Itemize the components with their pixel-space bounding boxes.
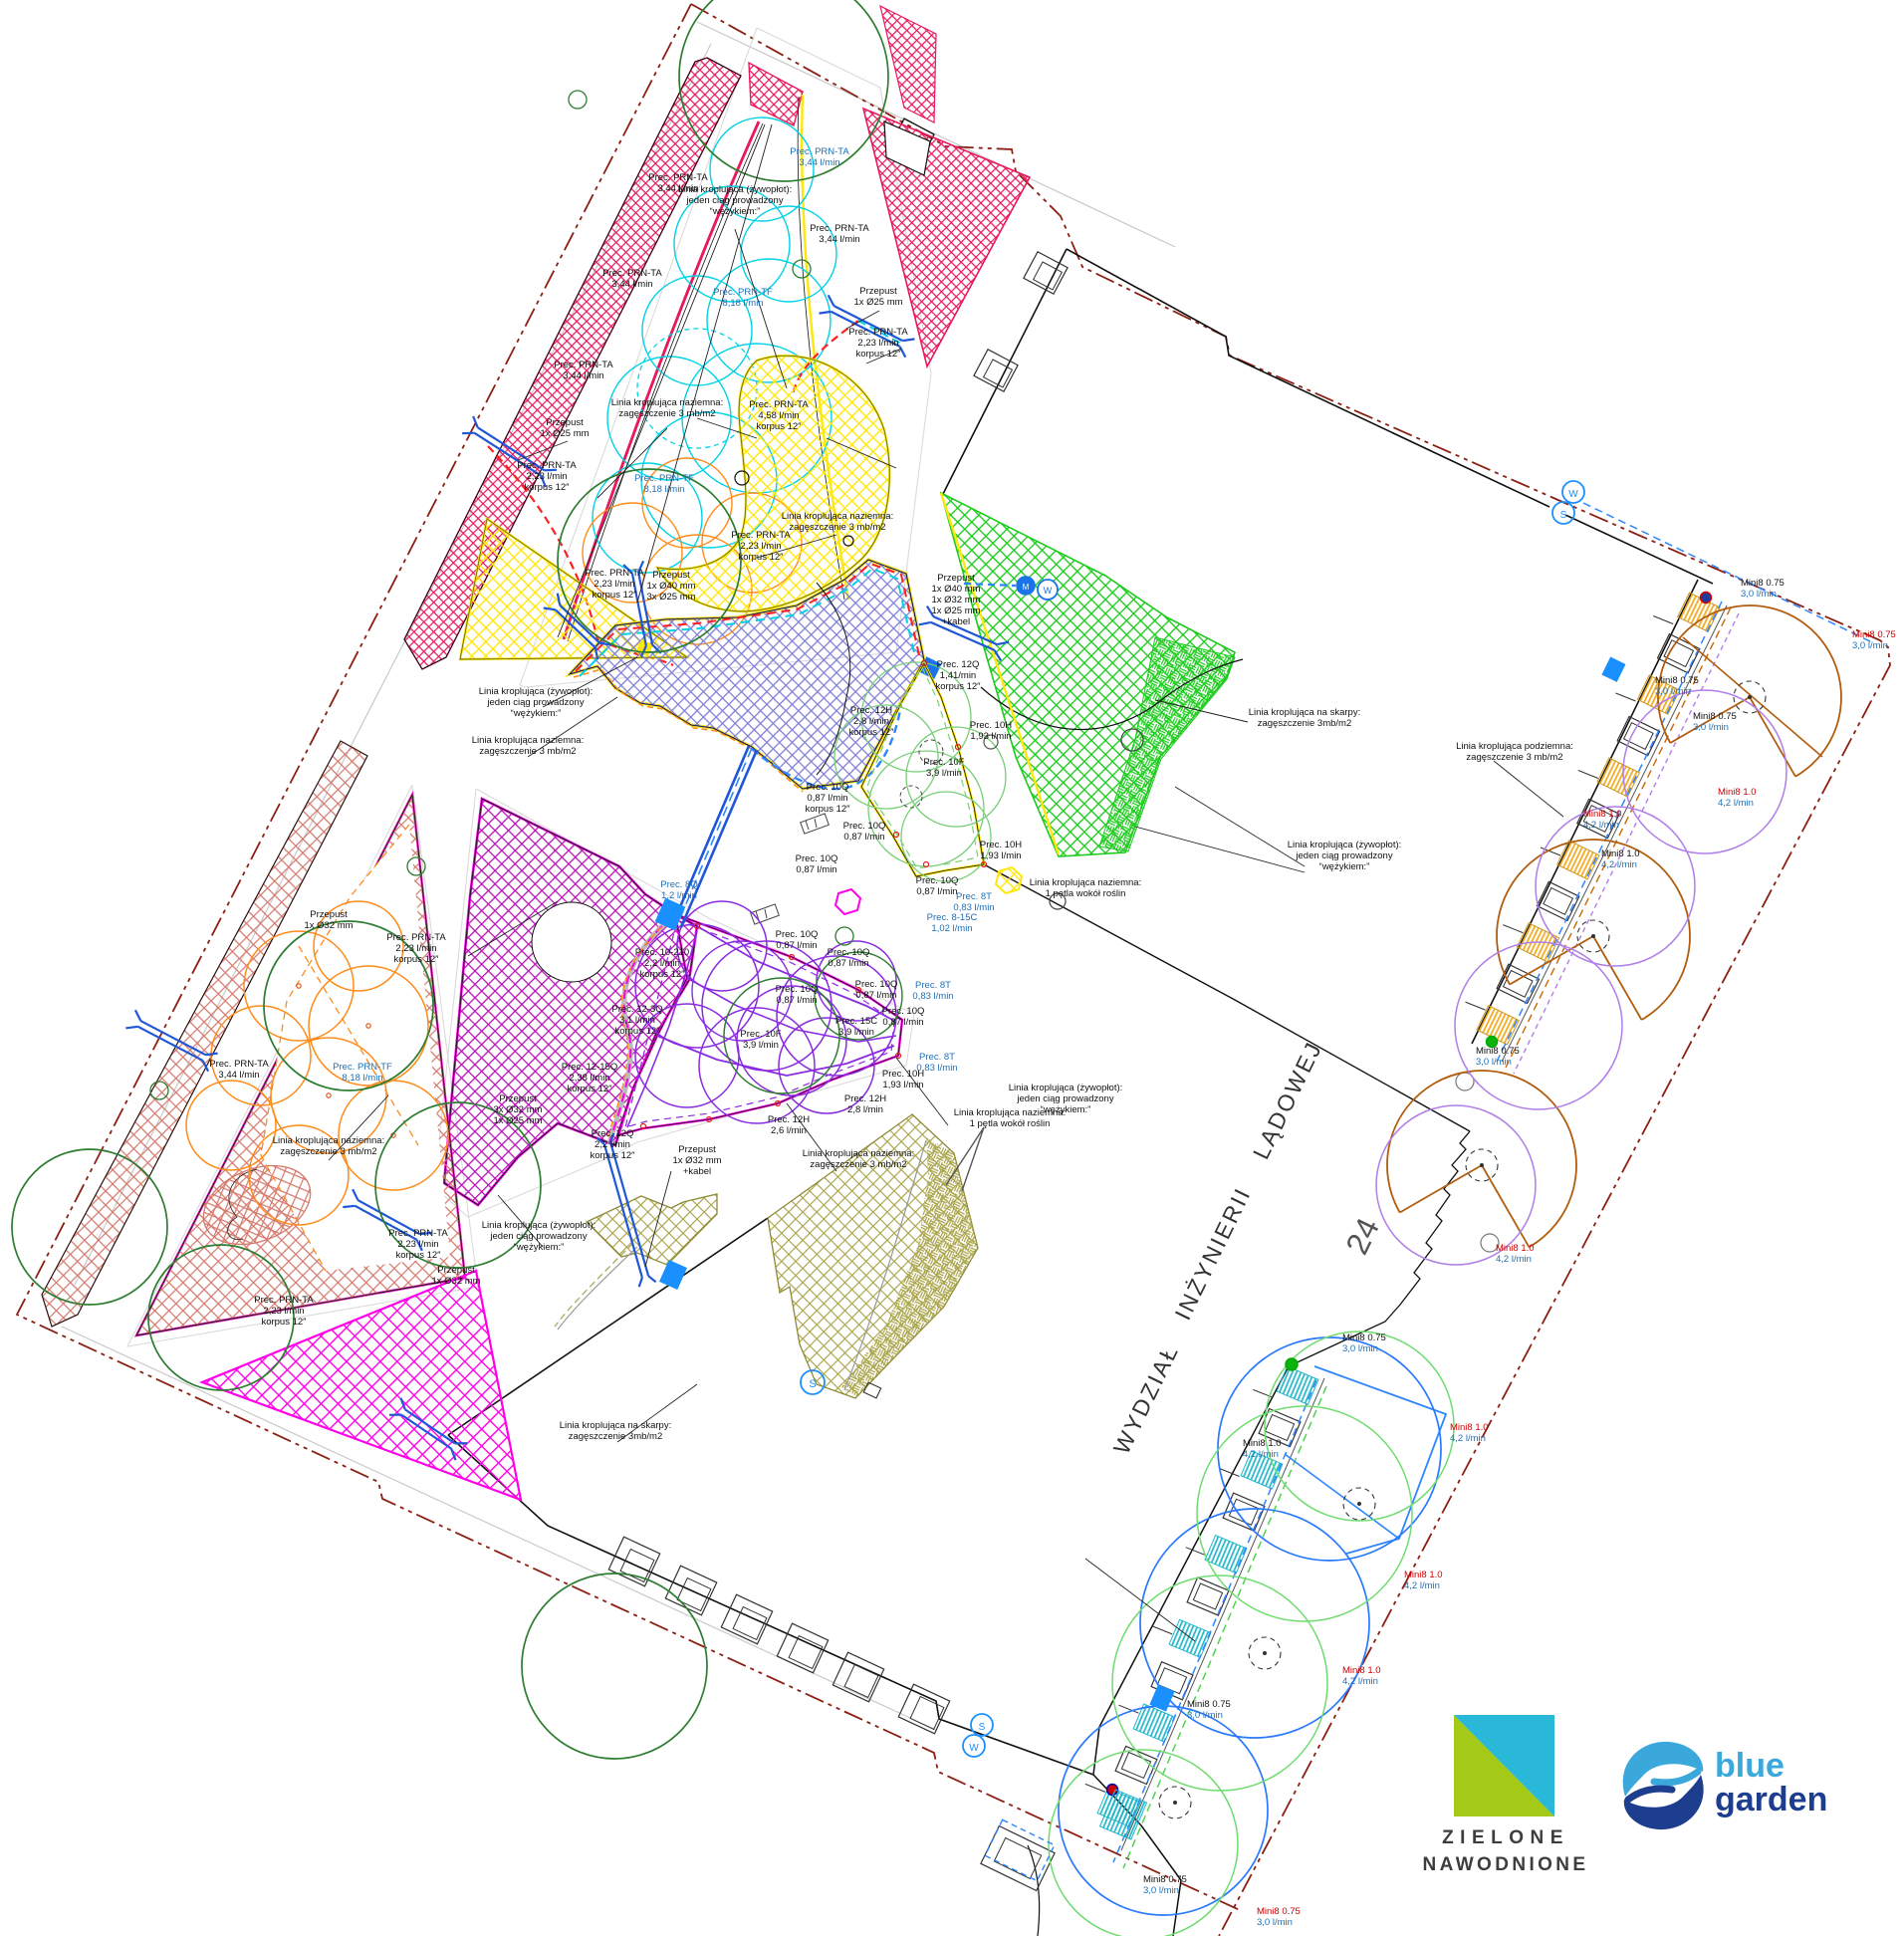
svg-text:Prec. 10Q: Prec. 10Q: [843, 821, 886, 832]
svg-text:NAWODNIONE: NAWODNIONE: [1423, 1854, 1589, 1875]
svg-text:4,2 l/min: 4,2 l/min: [1496, 1254, 1532, 1265]
svg-text:Prec. 12Q: Prec. 12Q: [592, 1128, 634, 1139]
svg-text:zagęszczenie 3 mb/m2: zagęszczenie 3 mb/m2: [479, 746, 576, 757]
svg-text:2,23 l/min: 2,23 l/min: [857, 338, 898, 349]
svg-text:3,9 l/min: 3,9 l/min: [926, 768, 962, 779]
svg-text:Mini8 0.75: Mini8 0.75: [1187, 1699, 1231, 1710]
svg-text:Mini8 0.75: Mini8 0.75: [1476, 1046, 1520, 1057]
svg-text:3,0 l/min: 3,0 l/min: [1693, 722, 1729, 733]
svg-text:3,0 l/min: 3,0 l/min: [1655, 686, 1691, 697]
svg-text:Linia kroplująca (żywopłot):: Linia kroplująca (żywopłot):: [482, 1220, 596, 1231]
svg-text:Mini8 1.0: Mini8 1.0: [1583, 809, 1622, 820]
svg-text:1x Ø40 mm: 1x Ø40 mm: [646, 581, 695, 592]
svg-text:4,58 l/min: 4,58 l/min: [758, 410, 799, 421]
svg-text:“wężykiem:”: “wężykiem:”: [514, 1242, 565, 1253]
svg-text:Prec. 10Q: Prec. 10Q: [776, 984, 819, 995]
svg-text:Linia kroplująca naziemna:: Linia kroplująca naziemna:: [782, 511, 893, 522]
svg-text:Linia kroplująca na skarpy:: Linia kroplująca na skarpy:: [560, 1420, 671, 1431]
svg-text:Linia kroplująca (żywopłot):: Linia kroplująca (żywopłot):: [1009, 1083, 1123, 1093]
svg-text:0,87 l/min: 0,87 l/min: [807, 793, 847, 804]
svg-text:Linia kroplująca naziemna:: Linia kroplująca naziemna:: [611, 397, 723, 408]
svg-text:2,2 l/min: 2,2 l/min: [595, 1139, 630, 1150]
svg-text:+kabel: +kabel: [942, 616, 970, 627]
svg-text:Prec. PRN-TA: Prec. PRN-TA: [810, 223, 869, 234]
svg-text:1,02 l/min: 1,02 l/min: [931, 923, 972, 934]
svg-text:Mini8 0.75: Mini8 0.75: [1852, 629, 1896, 640]
svg-text:4,2 l/min: 4,2 l/min: [1450, 1433, 1486, 1444]
svg-text:Linia kroplująca (żywopłot):: Linia kroplująca (żywopłot):: [1288, 840, 1402, 850]
svg-text:Prec. 8T: Prec. 8T: [956, 891, 992, 902]
svg-text:Prec. PRN-TA: Prec. PRN-TA: [585, 568, 644, 579]
svg-text:Prec. 10H: Prec. 10H: [980, 840, 1022, 850]
svg-text:3,44 l/min: 3,44 l/min: [563, 370, 603, 381]
svg-text:korpus 12″: korpus 12″: [261, 1317, 307, 1328]
svg-text:Prec. PRN-TF: Prec. PRN-TF: [713, 287, 773, 298]
svg-text:1,93 l/min: 1,93 l/min: [970, 731, 1011, 742]
svg-text:Mini8 1.0: Mini8 1.0: [1496, 1243, 1535, 1254]
svg-text:M: M: [1023, 583, 1030, 592]
svg-text:Prec. PRN-TF: Prec. PRN-TF: [634, 473, 694, 484]
svg-text:4,2 l/min: 4,2 l/min: [1342, 1676, 1378, 1687]
svg-text:garden: garden: [1715, 1781, 1827, 1818]
svg-text:3x Ø25 mm: 3x Ø25 mm: [646, 592, 695, 603]
svg-text:1,41/min: 1,41/min: [940, 670, 976, 681]
svg-text:1,93 l/min: 1,93 l/min: [882, 1080, 923, 1090]
svg-text:korpus 12″: korpus 12″: [393, 954, 439, 965]
svg-text:Linia kroplująca podziemna:: Linia kroplująca podziemna:: [1456, 741, 1573, 752]
svg-text:2,38 l/min: 2,38 l/min: [569, 1073, 609, 1084]
svg-text:1x Ø25 mm: 1x Ø25 mm: [493, 1115, 542, 1126]
svg-text:0,87 l/min: 0,87 l/min: [882, 1017, 923, 1028]
svg-text:Prec. 8T: Prec. 8T: [919, 1052, 955, 1063]
svg-text:Mini8 1.0: Mini8 1.0: [1601, 848, 1640, 859]
svg-text:zagęszczenie 3mb/m2: zagęszczenie 3mb/m2: [1258, 718, 1352, 729]
svg-text:8,18 l/min: 8,18 l/min: [722, 298, 763, 309]
svg-text:Linia kroplująca naziemna:: Linia kroplująca naziemna:: [803, 1148, 914, 1159]
svg-text:0,87 l/min: 0,87 l/min: [776, 940, 817, 951]
svg-text:zagęszczenie 3 mb/m2: zagęszczenie 3 mb/m2: [280, 1146, 376, 1157]
svg-text:Mini8 0.75: Mini8 0.75: [1655, 675, 1699, 686]
svg-text:Prec. 10Q: Prec. 10Q: [882, 1006, 925, 1017]
svg-text:Przepust: Przepust: [437, 1265, 475, 1276]
svg-text:Prec. 10H: Prec. 10H: [882, 1069, 924, 1080]
svg-text:3,0 l/min: 3,0 l/min: [1187, 1710, 1223, 1721]
svg-text:Mini8 1.0: Mini8 1.0: [1243, 1438, 1282, 1449]
svg-text:jeden ciąg prowadzony: jeden ciąg prowadzony: [486, 697, 584, 708]
svg-text:korpus 12″: korpus 12″: [639, 969, 685, 980]
svg-text:1x Ø25 mm: 1x Ø25 mm: [540, 428, 589, 439]
svg-text:2,8 l/min: 2,8 l/min: [847, 1104, 883, 1115]
svg-text:4,2 l/min: 4,2 l/min: [1718, 798, 1754, 809]
svg-text:Prec. 12H: Prec. 12H: [850, 705, 892, 716]
svg-text:3,0 l/min: 3,0 l/min: [1342, 1343, 1378, 1354]
svg-text:2,2 l/min: 2,2 l/min: [644, 958, 680, 969]
svg-text:Prec. 12H: Prec. 12H: [768, 1114, 810, 1125]
svg-text:3x Ø32 mm: 3x Ø32 mm: [493, 1104, 542, 1115]
svg-text:Prec. PRN-TA: Prec. PRN-TA: [209, 1059, 269, 1070]
svg-text:2,23 l/min: 2,23 l/min: [594, 579, 634, 590]
svg-text:0,87 l/min: 0,87 l/min: [776, 995, 817, 1006]
svg-text:Mini8 0.75: Mini8 0.75: [1741, 578, 1785, 589]
svg-text:2,6 l/min: 2,6 l/min: [771, 1125, 807, 1136]
svg-text:1x Ø32 mm: 1x Ø32 mm: [672, 1155, 721, 1166]
svg-text:Linia kroplująca (żywopłot):: Linia kroplująca (żywopłot):: [678, 184, 793, 195]
svg-text:jeden ciąg prowadzony: jeden ciąg prowadzony: [489, 1231, 587, 1242]
svg-text:8,18 l/min: 8,18 l/min: [643, 484, 684, 495]
svg-text:“wężykiem:”: “wężykiem:”: [1041, 1104, 1091, 1115]
svg-text:+kabel: +kabel: [683, 1166, 711, 1177]
svg-text:Prec. PRN-TA: Prec. PRN-TA: [554, 360, 613, 370]
svg-text:0,83 l/min: 0,83 l/min: [912, 991, 953, 1002]
svg-text:Prec. 10H: Prec. 10H: [970, 720, 1012, 731]
svg-text:3,9 l/min: 3,9 l/min: [838, 1027, 874, 1038]
svg-text:3,44 l/min: 3,44 l/min: [611, 279, 652, 290]
svg-text:zagęszczenie 3 mb/m2: zagęszczenie 3 mb/m2: [789, 522, 885, 533]
svg-text:korpus 12″: korpus 12″: [567, 1084, 612, 1094]
svg-text:jeden ciąg prowadzony: jeden ciąg prowadzony: [1016, 1093, 1113, 1104]
svg-text:Linia kroplująca naziemna:: Linia kroplująca naziemna:: [472, 735, 584, 746]
svg-text:Mini8 1.0: Mini8 1.0: [1404, 1570, 1443, 1580]
svg-text:Mini8 0.75: Mini8 0.75: [1693, 711, 1737, 722]
svg-text:1x Ø25 mm: 1x Ø25 mm: [931, 605, 980, 616]
svg-text:Prec. PRN-TA: Prec. PRN-TA: [648, 172, 708, 183]
svg-text:1x Ø32 mm: 1x Ø32 mm: [304, 920, 353, 931]
svg-text:Prec. 10Q: Prec. 10Q: [828, 947, 870, 958]
svg-text:1 pętla wokół roślin: 1 pętla wokół roślin: [1046, 888, 1126, 899]
svg-text:zagęszczenie 3 mb/m2: zagęszczenie 3 mb/m2: [618, 408, 715, 419]
svg-text:jeden ciąg prowadzony: jeden ciąg prowadzony: [685, 195, 783, 206]
svg-text:1x Ø40 mm: 1x Ø40 mm: [931, 584, 980, 595]
svg-text:Przepust: Przepust: [310, 909, 348, 920]
svg-text:Przepust: Przepust: [652, 570, 690, 581]
svg-text:3,0 l/min: 3,0 l/min: [1476, 1057, 1512, 1068]
svg-text:3,9 l/min: 3,9 l/min: [743, 1040, 779, 1051]
svg-text:Mini8 0.75: Mini8 0.75: [1342, 1332, 1386, 1343]
svg-text:korpus 12″: korpus 12″: [756, 421, 802, 432]
svg-text:korpus 12″: korpus 12″: [592, 590, 637, 601]
svg-text:Prec. 12-3Q: Prec. 12-3Q: [611, 1004, 662, 1015]
svg-text:Linia kroplująca naziemna:: Linia kroplująca naziemna:: [273, 1135, 384, 1146]
svg-text:S: S: [979, 1722, 986, 1733]
svg-text:Prec. PRN-TA: Prec. PRN-TA: [749, 399, 809, 410]
svg-text:korpus 12″: korpus 12″: [395, 1250, 441, 1261]
svg-text:Prec. 10-210: Prec. 10-210: [635, 947, 689, 958]
svg-text:S: S: [809, 1378, 816, 1390]
svg-text:Prec. PRN-TA: Prec. PRN-TA: [254, 1295, 314, 1306]
svg-text:1x Ø32 mm: 1x Ø32 mm: [931, 595, 980, 605]
svg-text:Prec. 10Q: Prec. 10Q: [776, 929, 819, 940]
svg-text:korpus 12″: korpus 12″: [935, 681, 981, 692]
svg-text:0,87 l/min: 0,87 l/min: [855, 990, 896, 1001]
svg-text:Prec. PRN-TA: Prec. PRN-TA: [790, 146, 849, 157]
svg-text:Mini8 0.75: Mini8 0.75: [1257, 1906, 1301, 1917]
svg-text:Przepust: Przepust: [499, 1093, 537, 1104]
svg-text:Przepust: Przepust: [678, 1144, 716, 1155]
svg-text:Prec. PRN-TA: Prec. PRN-TA: [517, 460, 577, 471]
svg-text:zagęszczenie 3mb/m2: zagęszczenie 3mb/m2: [569, 1431, 663, 1442]
svg-text:korpus 12″: korpus 12″: [848, 727, 894, 738]
svg-text:Linia kroplująca (żywopłot):: Linia kroplująca (żywopłot):: [479, 686, 594, 697]
svg-text:Prec. 8Q: Prec. 8Q: [660, 879, 698, 890]
svg-text:Prec. 10F: Prec. 10F: [923, 757, 964, 768]
svg-text:Prec. PRN-TA: Prec. PRN-TA: [848, 327, 908, 338]
svg-text:4,2 l/min: 4,2 l/min: [1583, 820, 1619, 831]
svg-text:“wężykiem:”: “wężykiem:”: [1319, 861, 1370, 872]
svg-text:Mini8 1.0: Mini8 1.0: [1718, 787, 1757, 798]
svg-text:1x Ø25 mm: 1x Ø25 mm: [853, 297, 902, 308]
svg-text:Mini8 0.75: Mini8 0.75: [1143, 1874, 1187, 1885]
svg-text:Prec. 8T: Prec. 8T: [915, 980, 951, 991]
svg-text:W: W: [1044, 586, 1053, 596]
svg-text:Prec. PRN-TA: Prec. PRN-TA: [388, 1228, 448, 1239]
svg-text:Prec. 12-15Q: Prec. 12-15Q: [562, 1062, 618, 1073]
svg-text:Prec. 10Q: Prec. 10Q: [855, 979, 898, 990]
svg-text:Linia kroplująca na skarpy:: Linia kroplująca na skarpy:: [1249, 707, 1360, 718]
svg-text:2,23 l/min: 2,23 l/min: [395, 943, 436, 954]
svg-text:4,2 l/min: 4,2 l/min: [1243, 1449, 1279, 1460]
svg-text:Mini8 1.0: Mini8 1.0: [1450, 1422, 1489, 1433]
svg-text:4,2 l/min: 4,2 l/min: [1601, 859, 1637, 870]
svg-text:3,0 l/min: 3,0 l/min: [1741, 589, 1777, 600]
svg-text:3,44 l/min: 3,44 l/min: [819, 234, 859, 245]
svg-text:Prec. 12H: Prec. 12H: [844, 1093, 886, 1104]
svg-text:ZIELONE: ZIELONE: [1442, 1827, 1569, 1848]
svg-text:korpus 12″: korpus 12″: [738, 552, 784, 563]
svg-text:Prec. 8-15C: Prec. 8-15C: [927, 912, 978, 923]
svg-text:zagęszczenie 3 mb/m2: zagęszczenie 3 mb/m2: [1466, 752, 1562, 763]
svg-text:W: W: [1568, 489, 1578, 500]
svg-text:2,23 l/min: 2,23 l/min: [526, 471, 567, 482]
svg-text:2,23 l/min: 2,23 l/min: [740, 541, 781, 552]
svg-text:0,87 l/min: 0,87 l/min: [843, 832, 884, 843]
svg-text:0,87 l/min: 0,87 l/min: [916, 886, 957, 897]
svg-text:Prec. PRN-TA: Prec. PRN-TA: [731, 530, 791, 541]
svg-text:W: W: [969, 1743, 979, 1754]
svg-text:korpus 12″: korpus 12″: [524, 482, 570, 493]
svg-text:3,1 l/min: 3,1 l/min: [619, 1015, 655, 1026]
svg-text:1,93 l/min: 1,93 l/min: [980, 850, 1021, 861]
svg-text:“wężykiem:”: “wężykiem:”: [511, 708, 562, 719]
svg-text:Przepust: Przepust: [937, 573, 975, 584]
svg-text:Prec. 10Q: Prec. 10Q: [916, 875, 959, 886]
svg-text:2,23 l/min: 2,23 l/min: [263, 1306, 304, 1317]
svg-text:3,44 l/min: 3,44 l/min: [218, 1070, 259, 1081]
svg-text:8,18 l/min: 8,18 l/min: [342, 1073, 382, 1084]
svg-text:3,0 l/min: 3,0 l/min: [1143, 1885, 1179, 1896]
svg-text:Prec. 10F: Prec. 10F: [740, 1029, 781, 1040]
svg-text:korpus 12″: korpus 12″: [590, 1150, 635, 1161]
svg-text:3,0 l/min: 3,0 l/min: [1852, 640, 1888, 651]
svg-text:korpus 12″: korpus 12″: [855, 349, 901, 360]
svg-text:Prec. PRN-TF: Prec. PRN-TF: [333, 1062, 392, 1073]
svg-text:0,87 l/min: 0,87 l/min: [828, 958, 868, 969]
svg-text:0,87 l/min: 0,87 l/min: [796, 864, 836, 875]
svg-text:3,0 l/min: 3,0 l/min: [1257, 1917, 1293, 1928]
svg-text:Przepust: Przepust: [546, 417, 584, 428]
svg-text:Prec. 10Q: Prec. 10Q: [796, 853, 838, 864]
svg-text:2,8 l/min: 2,8 l/min: [853, 716, 889, 727]
svg-text:zagęszczenie 3 mb/m2: zagęszczenie 3 mb/m2: [810, 1159, 906, 1170]
svg-text:1 pętla wokół roślin: 1 pętla wokół roślin: [970, 1118, 1051, 1129]
svg-text:“wężykiem:”: “wężykiem:”: [710, 206, 761, 217]
svg-text:Mini8 1.0: Mini8 1.0: [1342, 1665, 1381, 1676]
svg-text:korpus 12″: korpus 12″: [614, 1026, 660, 1037]
svg-text:blue: blue: [1715, 1747, 1785, 1785]
svg-text:Linia kroplująca naziemna:: Linia kroplująca naziemna:: [1030, 877, 1141, 888]
svg-text:Prec. 12Q: Prec. 12Q: [937, 659, 980, 670]
svg-text:jeden ciąg prowadzony: jeden ciąg prowadzony: [1295, 850, 1392, 861]
svg-text:1x Ø32 mm: 1x Ø32 mm: [431, 1276, 480, 1287]
svg-text:Przepust: Przepust: [859, 286, 897, 297]
svg-text:Prec. PRN-TA: Prec. PRN-TA: [602, 268, 662, 279]
svg-text:Prec. 15C: Prec. 15C: [835, 1016, 877, 1027]
svg-text:1,2 l/min: 1,2 l/min: [661, 890, 697, 901]
svg-text:Prec. PRN-TA: Prec. PRN-TA: [386, 932, 446, 943]
svg-text:3,44 l/min: 3,44 l/min: [799, 157, 839, 168]
svg-text:Prec. 10Q: Prec. 10Q: [807, 782, 849, 793]
svg-text:4,2 l/min: 4,2 l/min: [1404, 1580, 1440, 1591]
svg-text:S: S: [1560, 510, 1567, 521]
svg-text:2,23 l/min: 2,23 l/min: [397, 1239, 438, 1250]
svg-text:korpus 12″: korpus 12″: [805, 804, 850, 815]
